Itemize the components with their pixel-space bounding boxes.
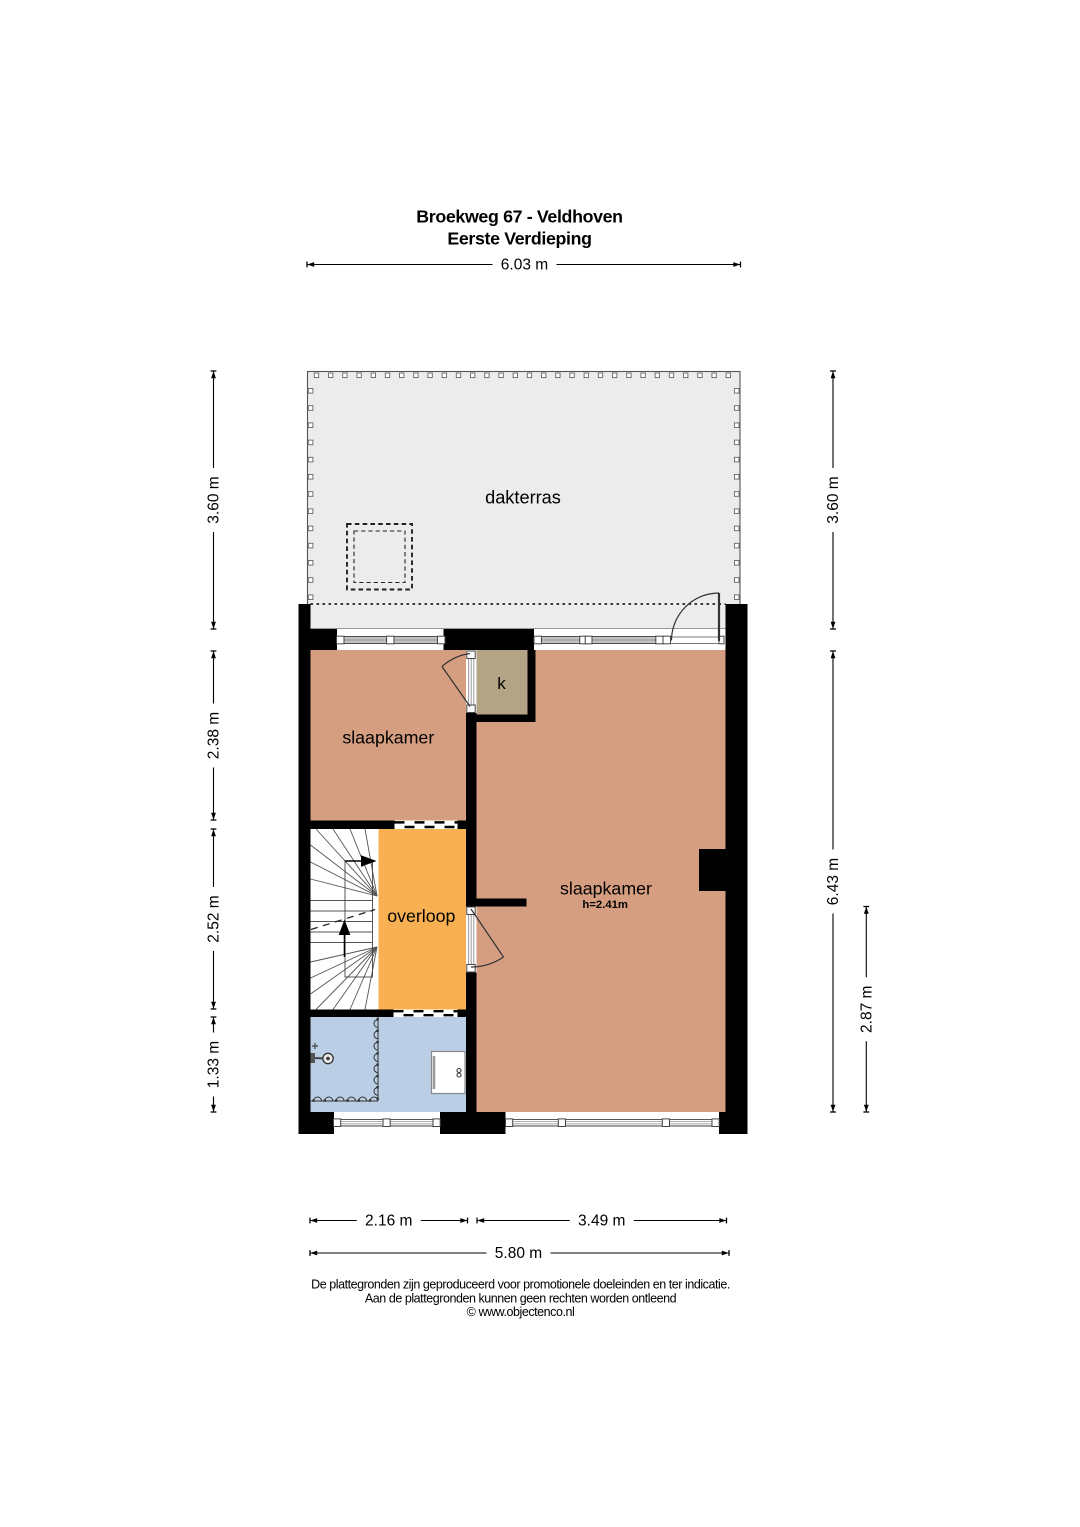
svg-text:1.33 m: 1.33 m	[206, 1041, 223, 1088]
svg-text:2.87 m: 2.87 m	[859, 986, 876, 1033]
svg-text:2.16 m: 2.16 m	[365, 1213, 412, 1230]
svg-text:© www.objectenco.nl: © www.objectenco.nl	[467, 1305, 575, 1319]
svg-text:k: k	[497, 674, 506, 693]
svg-text:Eerste Verdieping: Eerste Verdieping	[447, 229, 591, 249]
svg-text:2.38 m: 2.38 m	[206, 712, 223, 759]
svg-text:5.80 m: 5.80 m	[495, 1245, 542, 1262]
svg-text:slaapkamer: slaapkamer	[342, 727, 434, 747]
svg-text:3.60 m: 3.60 m	[825, 476, 842, 523]
svg-text:slaapkamer: slaapkamer	[560, 879, 652, 899]
svg-text:6.43 m: 6.43 m	[825, 858, 842, 905]
svg-text:h=2.41m: h=2.41m	[582, 899, 628, 911]
svg-text:Aan de plattegronden kunnen ge: Aan de plattegronden kunnen geen rechten…	[365, 1292, 677, 1306]
svg-text:overloop: overloop	[387, 906, 455, 926]
svg-text:De plattegronden zijn geproduc: De plattegronden zijn geproduceerd voor …	[311, 1278, 730, 1292]
svg-text:2.52 m: 2.52 m	[206, 895, 223, 942]
svg-text:3.60 m: 3.60 m	[206, 476, 223, 523]
svg-text:Broekweg 67 - Veldhoven: Broekweg 67 - Veldhoven	[416, 207, 622, 227]
svg-text:6.03 m: 6.03 m	[501, 257, 548, 274]
svg-text:dakterras: dakterras	[485, 488, 561, 508]
svg-text:3.49 m: 3.49 m	[578, 1213, 625, 1230]
